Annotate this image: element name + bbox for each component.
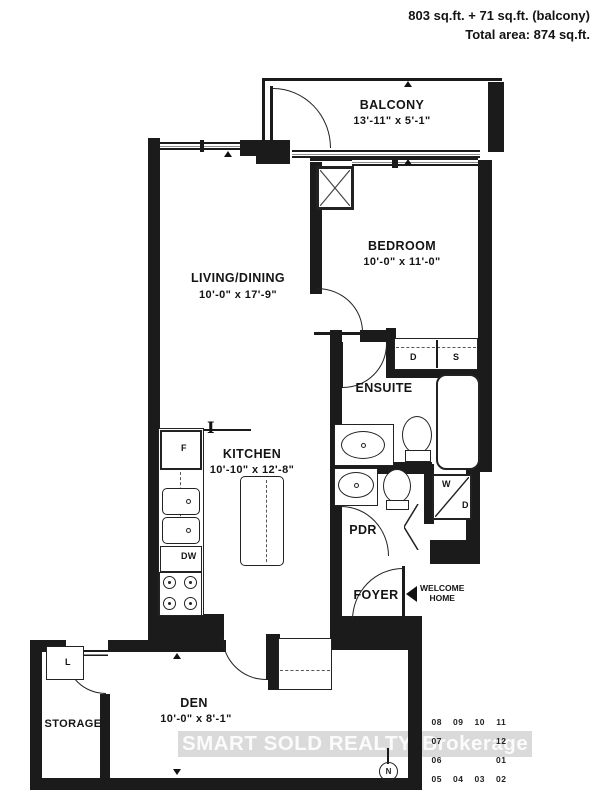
compass-icon: N: [379, 762, 398, 781]
welcome-home-text: WELCOME HOME: [420, 583, 464, 603]
bedroom-window: [352, 158, 478, 166]
wall-balcony-right-block: [488, 82, 504, 152]
keyplan-cell: 11: [491, 712, 513, 731]
bedroom-label: BEDROOM: [368, 239, 436, 253]
living-dining-dims: 10'-0" x 17'-9": [199, 289, 277, 301]
bedroom-door-arc: [317, 288, 363, 332]
balcony-left-line: [262, 78, 265, 144]
locker-label: L: [65, 657, 71, 667]
wall-storage-divider: [100, 694, 110, 778]
bedroom-dims: 10'-0" x 11'-0": [363, 256, 440, 268]
foyer-closet-rod-line: [280, 670, 330, 671]
ensuite-toilet-base: [405, 450, 431, 462]
area-line-2: Total area: 874 sq.ft.: [408, 25, 590, 44]
den-dims: 10'-0" x 8'-1": [160, 713, 231, 725]
balcony-top-line: [262, 78, 502, 81]
dryer-label: D: [462, 500, 469, 510]
shaft-top-line: [310, 158, 352, 161]
wall-foyer-bottom: [330, 616, 422, 650]
keyplan-cell: 05: [426, 769, 448, 788]
bedroom-window-mullion: [392, 156, 398, 168]
bedroom-closet-divider: [436, 340, 438, 368]
keyplan-cell: 04: [448, 769, 470, 788]
tick-den-bottom: [173, 769, 181, 775]
living-dining-label: LIVING/DINING: [191, 271, 285, 285]
ensuite-toilet-bowl: [402, 416, 432, 454]
kitchen-dims: 10'-10" x 12'-8": [210, 464, 294, 476]
kitchen-island: [240, 476, 284, 566]
welcome-line-2: HOME: [420, 593, 464, 603]
keyplan-cell: 07: [426, 731, 448, 750]
bifold-door-icon: [404, 504, 420, 550]
kitchen-sink-2: [162, 517, 200, 544]
keyplan-cell: 01: [491, 750, 513, 769]
burner-2: [184, 576, 197, 589]
keyplan-cell: 06: [426, 750, 448, 769]
fridge-label: F: [181, 443, 187, 453]
island-dash-line: [266, 480, 267, 562]
keyplan-cell: 12: [491, 731, 513, 750]
area-line-1: 803 sq.ft. + 71 sq.ft. (balcony): [408, 6, 590, 25]
storage-label: STORAGE: [45, 718, 102, 730]
tick-balcony-door: [404, 159, 412, 165]
keyplan-cell: [469, 750, 491, 769]
welcome-line-1: WELCOME: [420, 583, 464, 593]
closet-d-label: D: [410, 352, 417, 362]
floor-plan: SMART SOLD REALTY, Brokerage 803 sq.ft. …: [0, 0, 604, 799]
kitchen-sink-1: [162, 488, 200, 515]
keyplan-cell: [448, 731, 470, 750]
tick-balcony-top: [404, 81, 412, 87]
foyer-closet: [278, 638, 332, 690]
column-marker-icon: I: [207, 418, 214, 437]
burner-3: [163, 597, 176, 610]
wall-bottom: [30, 778, 422, 790]
keyplan-cell: 10: [469, 712, 491, 731]
entry-arrow-icon: [406, 586, 417, 602]
den-door-arc: [222, 636, 266, 680]
ensuite-label: ENSUITE: [356, 381, 413, 395]
bedroom-door-leaf: [314, 332, 364, 335]
living-window-mullion: [200, 140, 204, 152]
dishwasher-label: DW: [181, 551, 197, 561]
keyplan-cell: [469, 731, 491, 750]
shaft-x-icon: [320, 170, 350, 206]
wall-storage-top-b: [108, 640, 226, 652]
wall-bedroom-bottom: [360, 330, 388, 342]
balcony-sliding-door: [292, 150, 480, 158]
burner-4: [184, 597, 197, 610]
closet-s-label: S: [453, 352, 459, 362]
wall-entry-corner: [430, 540, 480, 564]
burner-1: [163, 576, 176, 589]
washer-label: W: [442, 479, 451, 489]
den-door-leaf: [266, 634, 269, 680]
keyplan-cell: [448, 750, 470, 769]
tick-living-window: [224, 151, 232, 157]
wall-den-right: [408, 650, 422, 788]
tick-den-top: [173, 653, 181, 659]
balcony-dims: 13'-11" x 5'-1": [353, 115, 430, 127]
keyplan-cell: 02: [491, 769, 513, 788]
balcony-door-arc: [273, 88, 331, 148]
pdr-toilet-bowl: [383, 469, 411, 503]
wall-foyer-left: [330, 562, 342, 618]
keyplan-cell: 03: [469, 769, 491, 788]
foyer-label: FOYER: [353, 588, 398, 602]
bathtub: [436, 374, 480, 470]
sink2-drain: [186, 528, 191, 533]
keyplan-cell: 08: [426, 712, 448, 731]
balcony-label: BALCONY: [360, 98, 425, 112]
keyplan-grid: 08 09 10 11 07 12 06 01 05 04 03 02: [426, 712, 512, 788]
kitchen-label: KITCHEN: [223, 447, 281, 461]
wall-storage-left: [30, 640, 42, 790]
ensuite-sink-drain: [361, 443, 366, 448]
area-summary: 803 sq.ft. + 71 sq.ft. (balcony) Total a…: [408, 6, 590, 44]
keyplan-cell: 09: [448, 712, 470, 731]
pdr-sink-drain: [354, 483, 359, 488]
washer-dryer-diagonal: [435, 477, 469, 517]
sink1-drain: [186, 499, 191, 504]
wall-right-main: [478, 160, 492, 472]
den-label: DEN: [180, 696, 208, 710]
pdr-label: PDR: [349, 523, 377, 537]
